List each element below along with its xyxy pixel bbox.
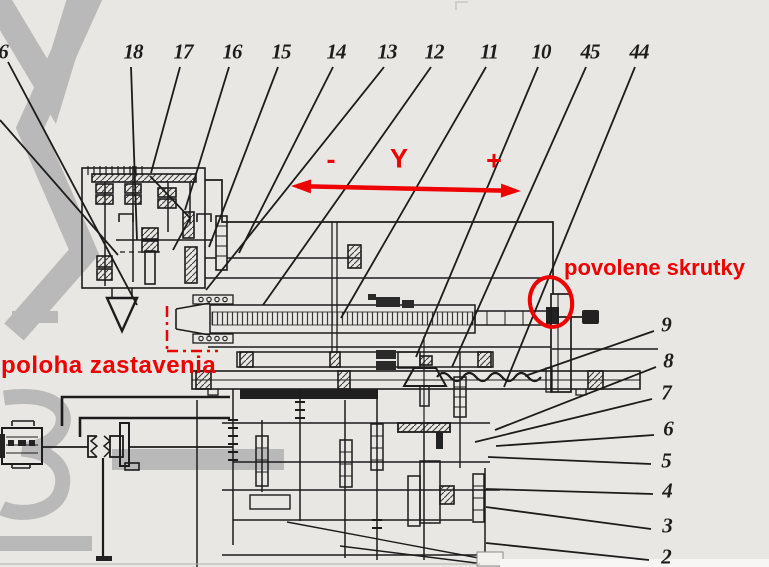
leader-line-5 <box>488 457 651 464</box>
leader-line-17 <box>151 67 180 173</box>
stop-position-label: poloha zastavenia <box>1 352 216 380</box>
part-callout-44: 44 <box>630 40 649 65</box>
part-callout-8: 8 <box>663 349 673 374</box>
part-callout-9: 9 <box>661 313 671 338</box>
arrowhead <box>501 184 521 198</box>
part-callout-15: 15 <box>272 40 291 65</box>
leader-line-8 <box>495 367 656 430</box>
leader-line-16 <box>185 67 229 210</box>
y-axis-label: Y <box>390 146 408 173</box>
leader-line-6 <box>8 62 137 305</box>
scanned-diagram-page: - Y + povolene skrutky poloha zastavenia… <box>0 0 769 567</box>
leader-line-15 <box>209 67 278 247</box>
arrowhead <box>291 179 311 193</box>
part-callout-10: 10 <box>532 40 551 65</box>
leader-line <box>0 120 118 255</box>
part-callout-12: 12 <box>425 40 444 65</box>
screw-circle-mark <box>525 273 576 331</box>
part-callout-16: 16 <box>223 40 242 65</box>
y-axis-plus-label: + <box>486 148 502 175</box>
leader-line-9 <box>525 331 654 376</box>
part-callout-11: 11 <box>480 40 498 65</box>
part-callout-14: 14 <box>327 40 346 65</box>
leader-line-11 <box>341 67 486 318</box>
leader-line-7 <box>475 399 652 442</box>
loosened-screws-label: povolene skrutky <box>564 255 745 281</box>
part-callout-5: 5 <box>661 449 671 474</box>
y-axis-arrow <box>297 186 515 191</box>
leader-line-6 <box>496 435 654 446</box>
part-callout-4: 4 <box>662 479 672 504</box>
part-callout-45: 45 <box>581 40 600 65</box>
leader-line-18 <box>131 67 137 240</box>
leader-line-2 <box>486 543 649 560</box>
leader-line-13 <box>206 67 384 290</box>
part-callout-7: 7 <box>661 381 671 406</box>
y-axis-minus-label: - <box>327 147 336 174</box>
part-callout-18: 18 <box>124 40 143 65</box>
part-callout-13: 13 <box>378 40 397 65</box>
part-callout-6: 6 <box>663 417 673 442</box>
part-callout-6: 6 <box>0 40 8 65</box>
callout-and-annotation-overlay <box>0 0 769 567</box>
leader-line-4 <box>486 489 653 494</box>
leader-line-3 <box>486 507 651 529</box>
part-callout-3: 3 <box>662 514 672 539</box>
part-callout-17: 17 <box>174 40 193 65</box>
leader-line-44 <box>504 67 635 387</box>
leader-line-10 <box>416 67 538 357</box>
part-callout-2: 2 <box>661 545 671 567</box>
